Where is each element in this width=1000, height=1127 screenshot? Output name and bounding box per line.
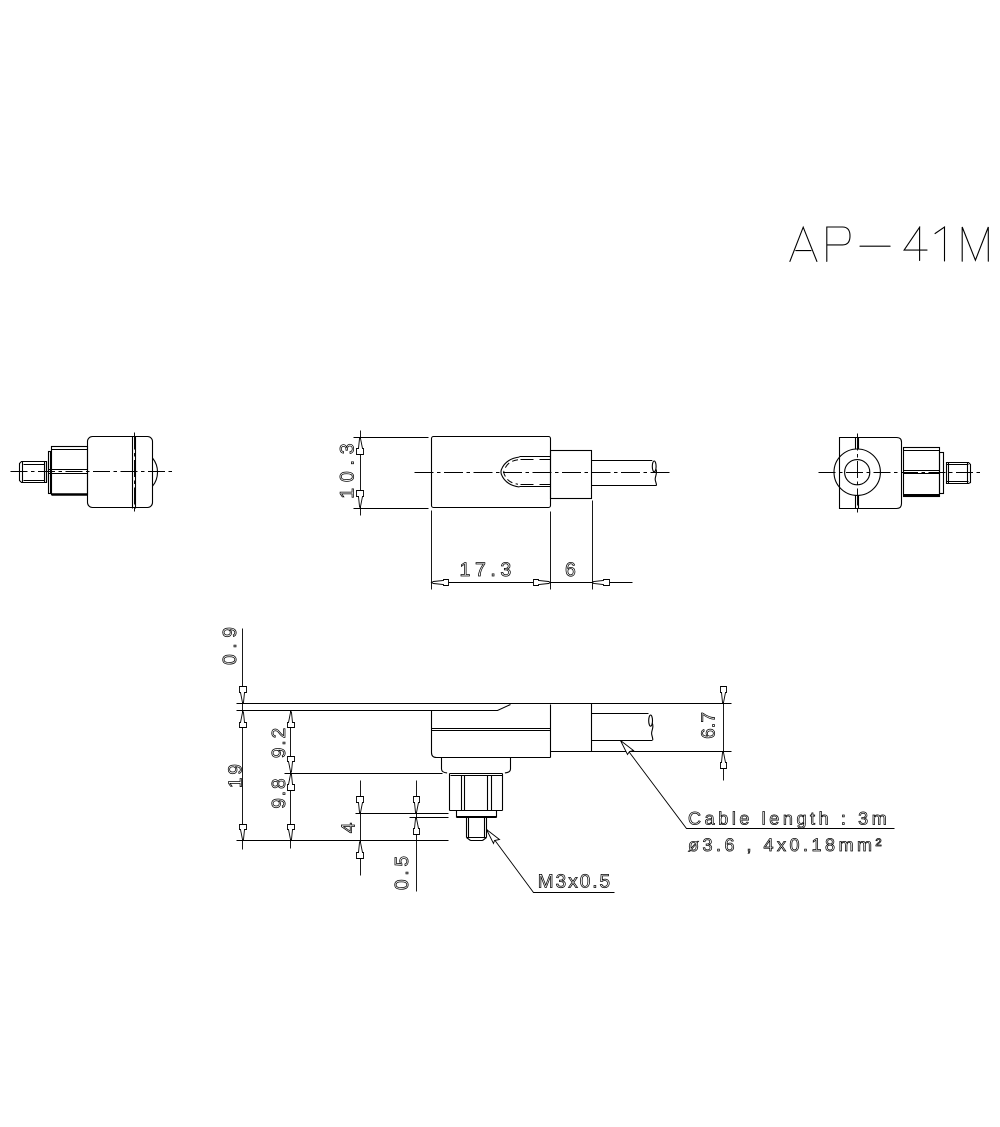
svg-text:6.7: 6.7 (698, 712, 719, 739)
svg-text:4: 4 (338, 822, 359, 833)
svg-text:M3x0.5: M3x0.5 (538, 872, 612, 893)
svg-text:19: 19 (226, 761, 247, 788)
svg-text:17.3: 17.3 (460, 559, 516, 581)
svg-text:10.3: 10.3 (337, 438, 359, 499)
svg-text:0.5: 0.5 (392, 852, 413, 890)
svg-text:9.2: 9.2 (269, 726, 290, 758)
svg-text:Cable length : 3m: Cable length : 3m (688, 809, 890, 829)
svg-text:6: 6 (565, 559, 576, 581)
svg-text:ø3.6 , 4x0.18mm²: ø3.6 , 4x0.18mm² (688, 835, 885, 855)
svg-text:9.8: 9.8 (269, 777, 290, 809)
svg-text:0.9: 0.9 (220, 621, 241, 665)
